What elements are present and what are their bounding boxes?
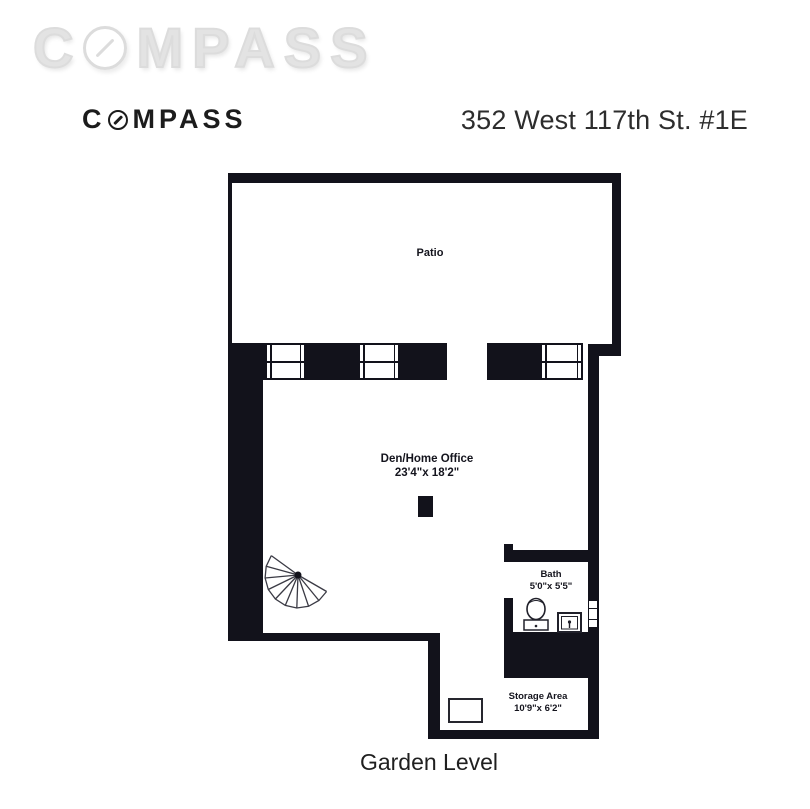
- right-exterior-wall: [588, 344, 599, 739]
- listing-address: 352 West 117th St. #1E: [461, 105, 748, 136]
- band-wall-segment: [306, 343, 358, 380]
- room-dimensions: 5'0"x 5'5": [501, 581, 601, 593]
- level-caption: Garden Level: [279, 749, 579, 776]
- brand-text-suffix: MPASS: [133, 106, 247, 133]
- watermark-text-suffix: MPASS: [136, 20, 376, 76]
- window-sill-line: [360, 361, 398, 363]
- room-name: Patio: [330, 247, 530, 259]
- band-wall-segment: [400, 343, 447, 380]
- room-label-bath: Bath 5'0"x 5'5": [501, 569, 601, 593]
- bath-wall-stub: [504, 544, 513, 562]
- bath-top-wall: [504, 550, 596, 562]
- band-wall-segment: [487, 343, 540, 380]
- storage-bottom-wall: [428, 730, 598, 739]
- window-sill-line: [267, 361, 304, 363]
- room-dimensions: 23'4"x 18'2": [327, 466, 527, 480]
- den-bottom-wall: [228, 633, 440, 641]
- patio-right-wall: [612, 173, 621, 356]
- patio-top-wall: [228, 173, 621, 183]
- room-name: Storage Area: [478, 691, 598, 703]
- room-label-storage: Storage Area 10'9"x 6'2": [478, 691, 598, 715]
- window: [265, 343, 306, 380]
- compass-watermark-logo: C MPASS: [33, 20, 376, 76]
- room-dimensions: 10'9"x 6'2": [478, 703, 598, 715]
- floorplan-page: C MPASS C MPASS 352 West 117th St. #1E: [0, 0, 810, 809]
- room-label-patio: Patio: [330, 247, 530, 259]
- compass-needle-o-icon: [108, 110, 128, 130]
- bath-fixtures: [515, 595, 605, 640]
- window: [540, 343, 583, 380]
- room-name: Bath: [501, 569, 601, 581]
- patio-left-wall: [228, 173, 232, 345]
- structural-column: [418, 496, 433, 517]
- storage-left-wall: [428, 633, 440, 739]
- brand-text-prefix: C: [82, 106, 106, 133]
- compass-brand-logo: C MPASS: [82, 106, 247, 133]
- window: [358, 343, 400, 380]
- window-sill-line: [542, 361, 581, 363]
- compass-needle-o-icon: [83, 26, 127, 70]
- room-label-den: Den/Home Office 23'4"x 18'2": [327, 452, 527, 480]
- room-name: Den/Home Office: [327, 452, 527, 466]
- spiral-staircase-icon: [260, 540, 332, 612]
- den-left-wall: [228, 343, 263, 641]
- toilet-icon: [524, 599, 548, 631]
- bath-left-lower-wall: [504, 598, 513, 635]
- watermark-text-prefix: C: [33, 20, 82, 76]
- sink-vanity-icon: [558, 613, 581, 632]
